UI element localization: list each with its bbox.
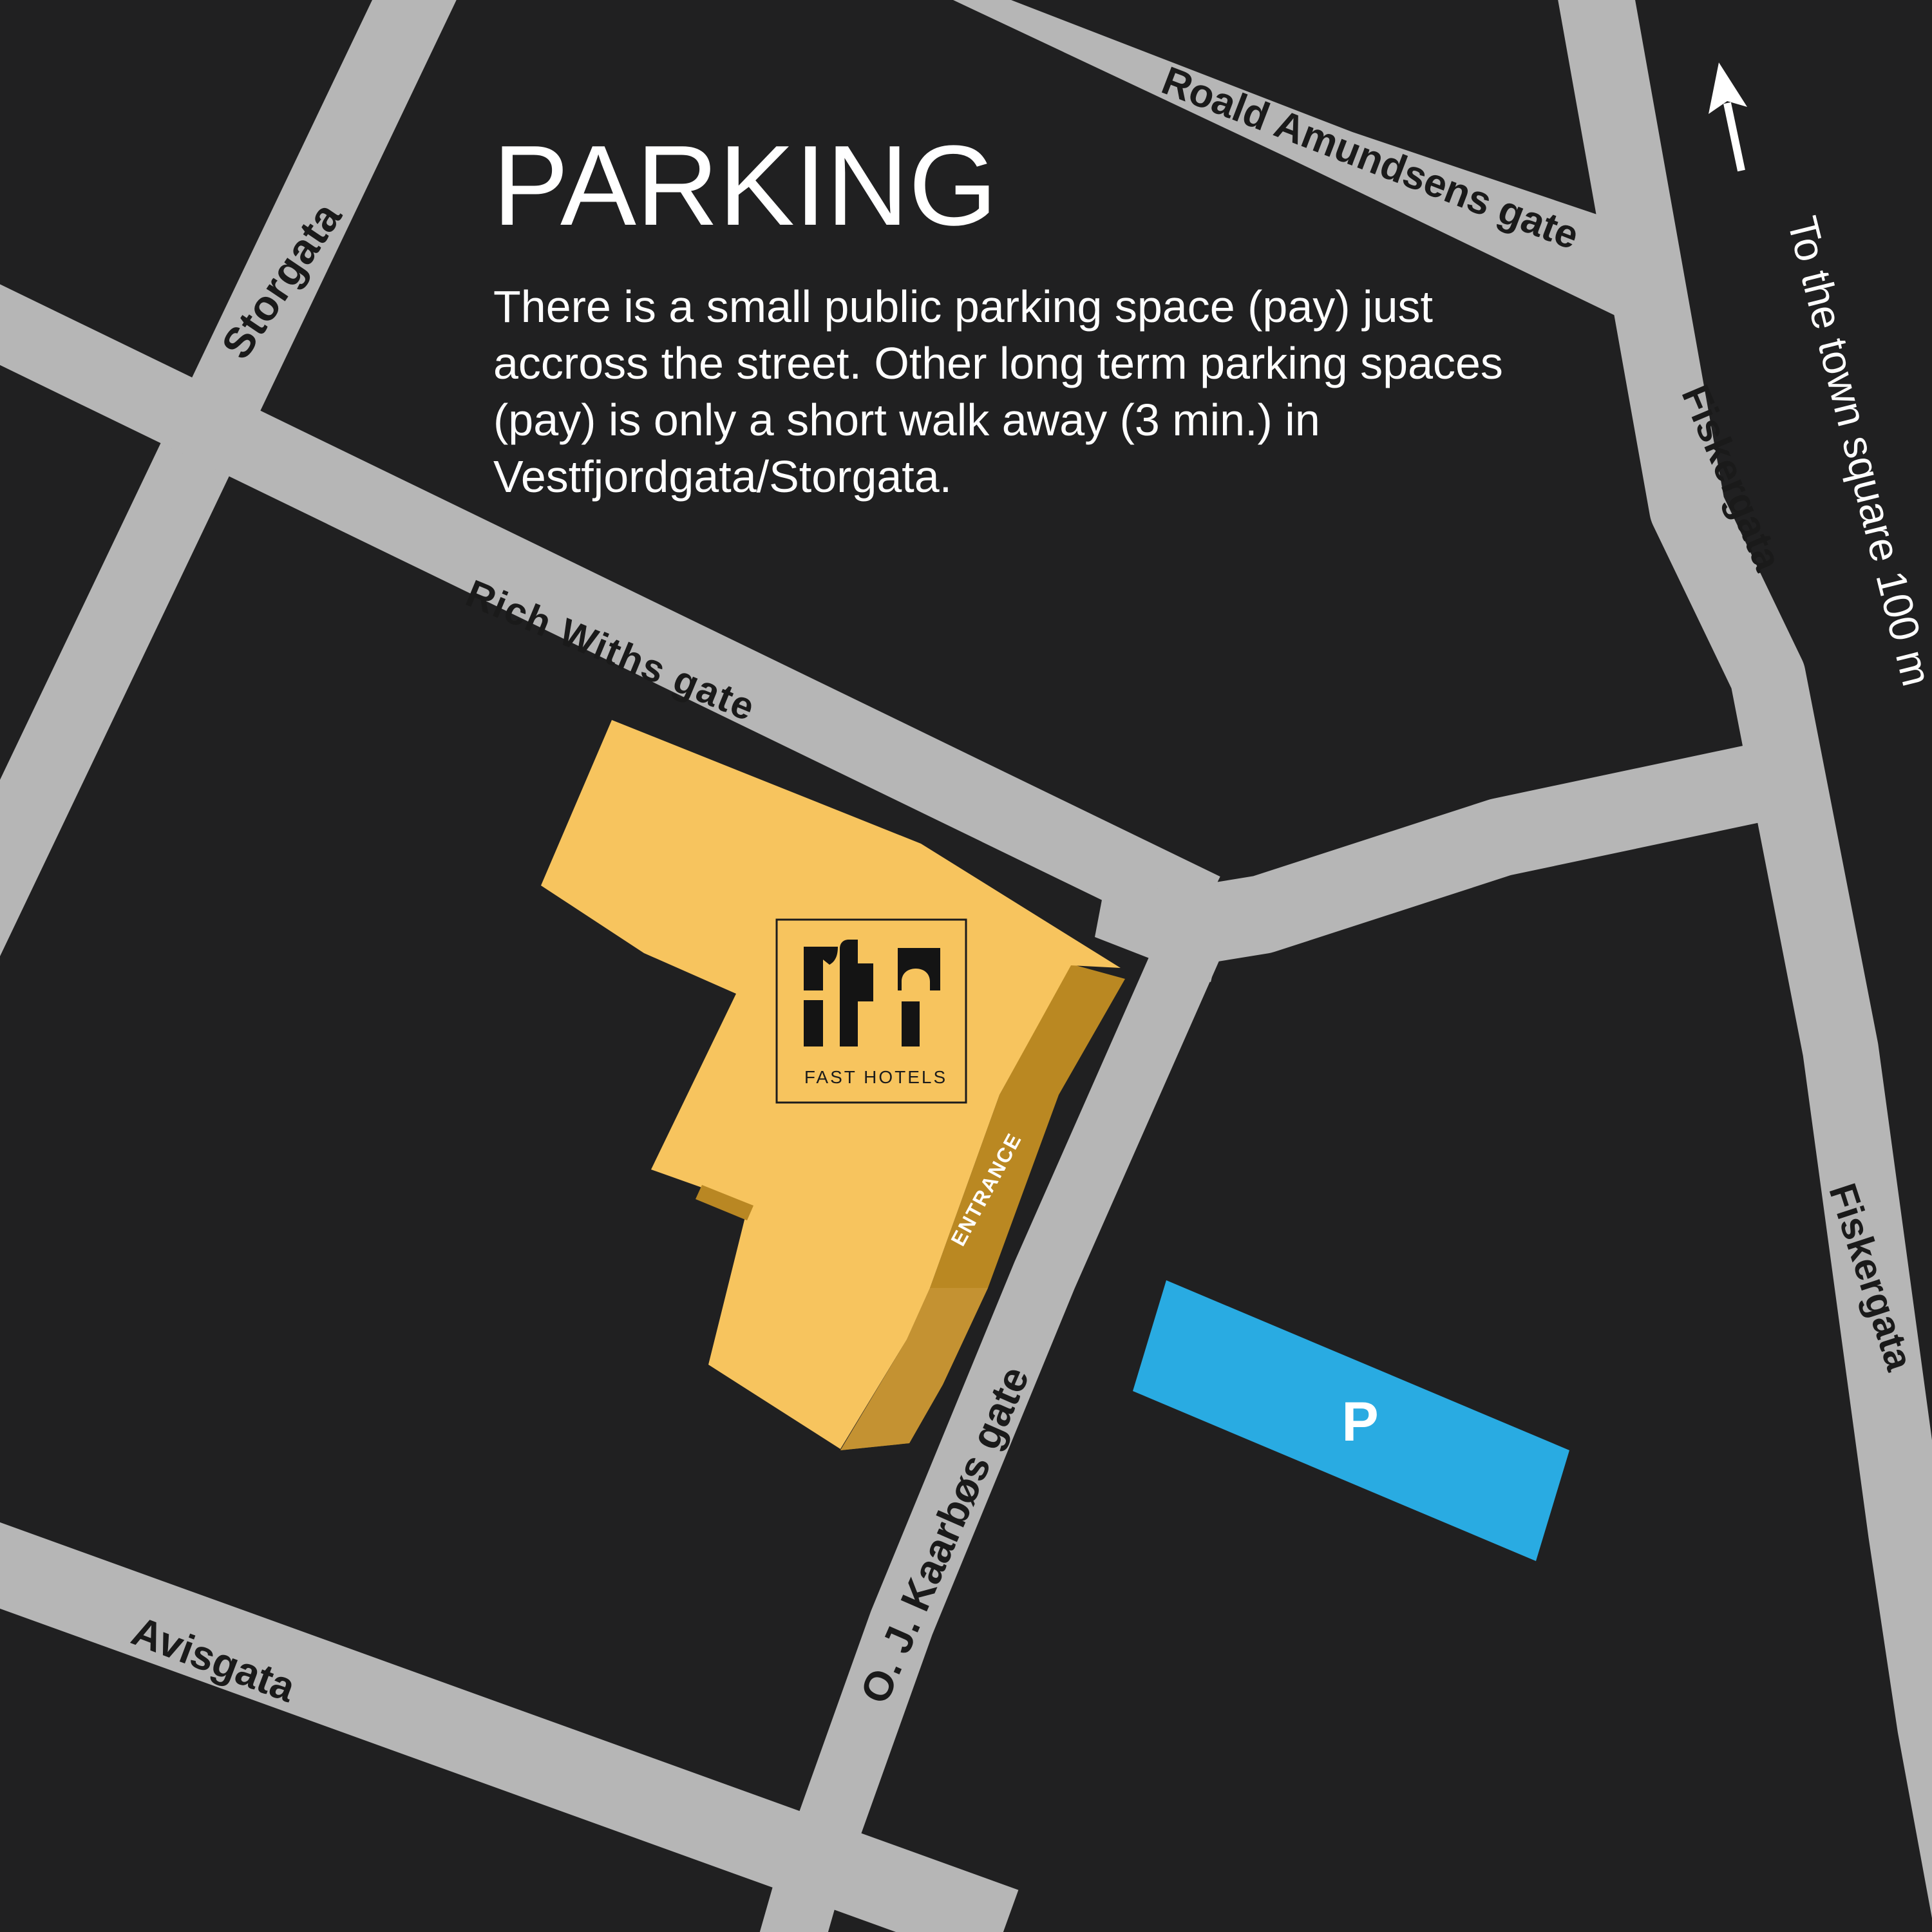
svg-text:There is a small public parkin: There is a small public parking space (p… xyxy=(493,281,1433,332)
svg-text:(pay) is only a short walk awa: (pay) is only a short walk away (3 min.)… xyxy=(493,395,1320,445)
svg-text:P: P xyxy=(1341,1391,1378,1453)
svg-text:Vestfjordgata/Storgata.: Vestfjordgata/Storgata. xyxy=(493,451,952,502)
svg-text:PARKING: PARKING xyxy=(493,122,998,249)
svg-text:accross the street. Other long: accross the street. Other long term park… xyxy=(493,338,1503,388)
svg-text:FAST HOTELS: FAST HOTELS xyxy=(804,1067,947,1087)
